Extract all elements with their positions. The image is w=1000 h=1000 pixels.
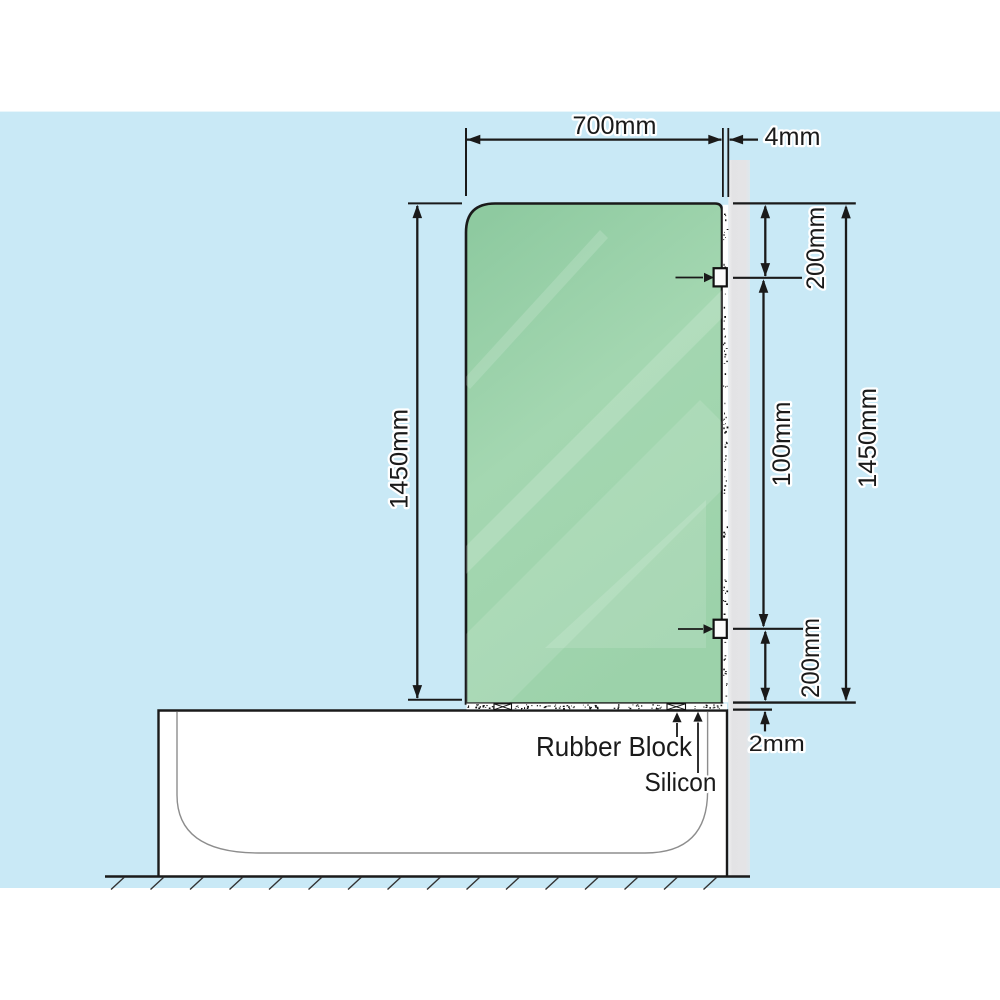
svg-text:Silicon: Silicon: [645, 767, 717, 797]
svg-text:200mm: 200mm: [797, 618, 825, 698]
svg-text:1450mm: 1450mm: [854, 388, 882, 488]
svg-text:2mm: 2mm: [749, 731, 805, 756]
svg-text:200mm: 200mm: [802, 207, 830, 290]
svg-text:4mm: 4mm: [765, 123, 821, 151]
svg-text:100mm: 100mm: [768, 402, 796, 487]
svg-text:1450mm: 1450mm: [386, 409, 414, 509]
svg-text:700mm: 700mm: [573, 112, 657, 140]
svg-text:Rubber Block: Rubber Block: [536, 731, 693, 762]
